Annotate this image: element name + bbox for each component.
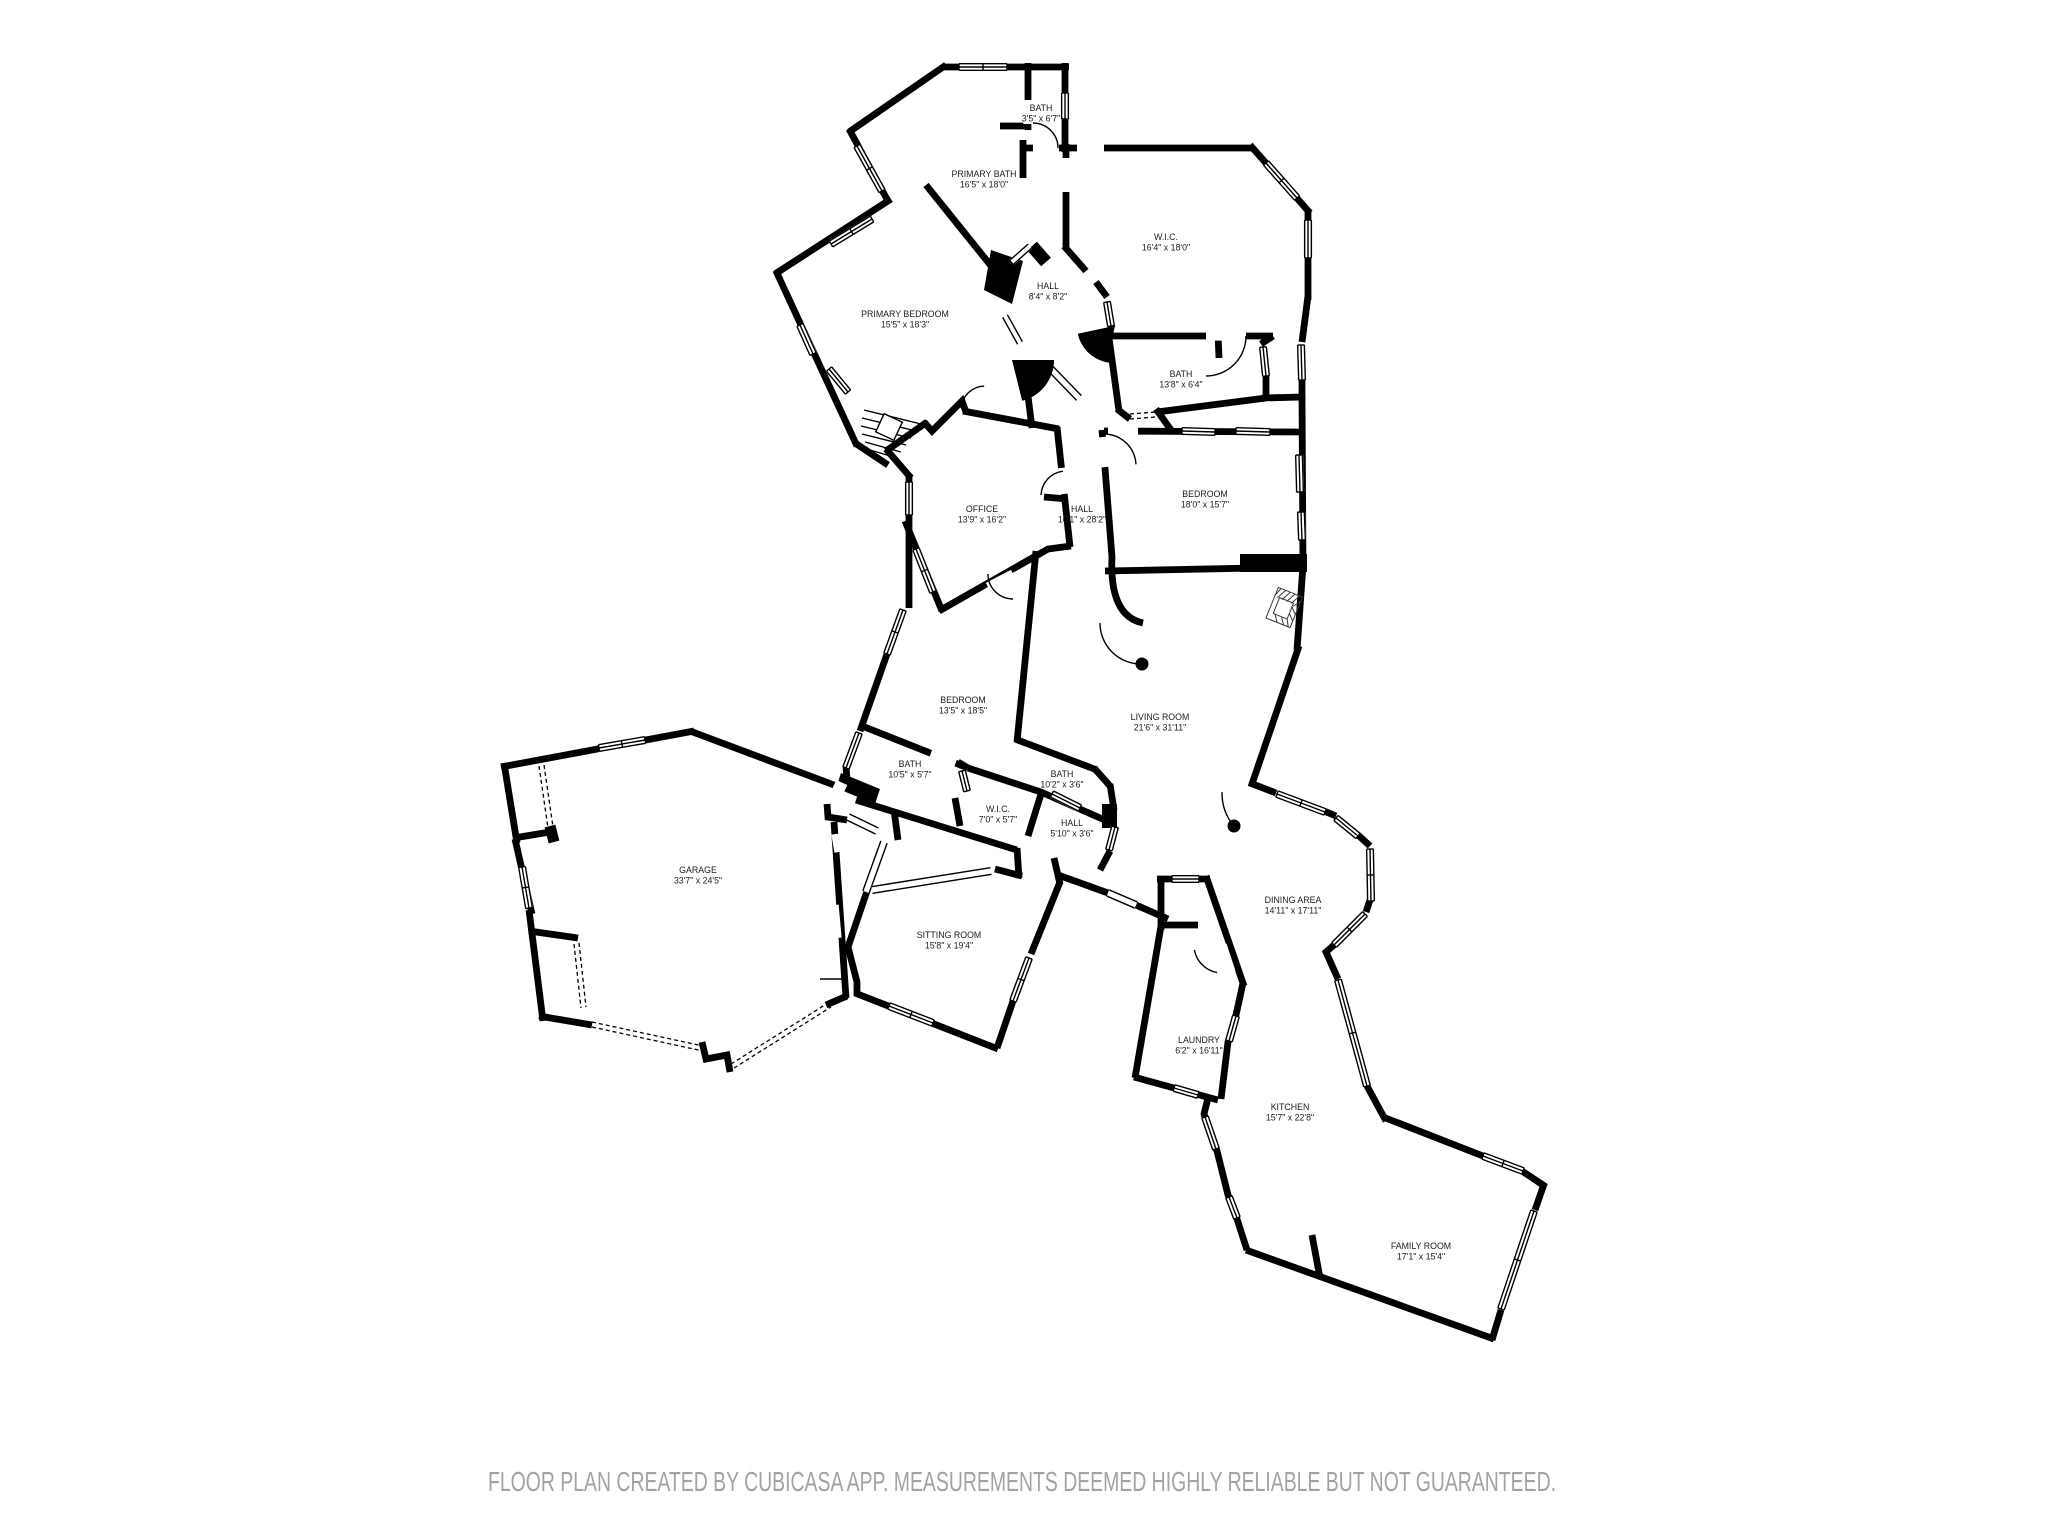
svg-text:PRIMARY BATH: PRIMARY BATH (951, 169, 1016, 179)
svg-text:16'5" x 18'0": 16'5" x 18'0" (960, 180, 1008, 190)
svg-text:13'8" x 6'4": 13'8" x 6'4" (1159, 380, 1202, 390)
svg-text:BATH: BATH (899, 759, 922, 769)
svg-text:FAMILY ROOM: FAMILY ROOM (1391, 1241, 1451, 1251)
svg-text:DINING AREA: DINING AREA (1265, 895, 1322, 905)
svg-text:BEDROOM: BEDROOM (1182, 489, 1227, 499)
svg-text:GARAGE: GARAGE (679, 865, 717, 875)
svg-text:LAUNDRY: LAUNDRY (1178, 1035, 1220, 1045)
svg-text:BATH: BATH (1030, 103, 1053, 113)
svg-text:W.I.C.: W.I.C. (986, 804, 1010, 814)
svg-text:8'4" x 8'2": 8'4" x 8'2" (1029, 292, 1067, 302)
svg-text:W.I.C.: W.I.C. (1154, 232, 1178, 242)
svg-text:3'5" x 6'7": 3'5" x 6'7" (1022, 114, 1060, 124)
svg-text:5'10" x 3'6": 5'10" x 3'6" (1050, 829, 1093, 839)
svg-text:FLOOR PLAN CREATED BY CUBICASA: FLOOR PLAN CREATED BY CUBICASA APP. MEAS… (488, 1466, 1556, 1497)
svg-text:10'2" x 3'6": 10'2" x 3'6" (1040, 780, 1083, 790)
svg-text:21'6" x 31'11": 21'6" x 31'11" (1134, 723, 1187, 733)
svg-text:17'1" x 15'4": 17'1" x 15'4" (1397, 1252, 1445, 1262)
svg-text:SITTING ROOM: SITTING ROOM (917, 930, 982, 940)
svg-text:15'8" x 19'4": 15'8" x 19'4" (925, 941, 973, 951)
svg-text:6'2" x 16'11": 6'2" x 16'11" (1175, 1046, 1223, 1056)
svg-text:PRIMARY BEDROOM: PRIMARY BEDROOM (861, 309, 949, 319)
svg-text:HALL: HALL (1071, 504, 1093, 514)
svg-text:14'11" x 17'11": 14'11" x 17'11" (1265, 906, 1322, 916)
svg-text:13'5" x 18'5": 13'5" x 18'5" (939, 706, 987, 716)
svg-text:HALL: HALL (1061, 818, 1083, 828)
svg-text:16'4" x 18'0": 16'4" x 18'0" (1142, 243, 1190, 253)
svg-text:BATH: BATH (1051, 769, 1074, 779)
svg-text:BEDROOM: BEDROOM (940, 695, 985, 705)
svg-text:15'5" x 18'3": 15'5" x 18'3" (881, 320, 929, 330)
svg-text:10'1" x 28'2": 10'1" x 28'2" (1058, 515, 1106, 525)
svg-text:13'9" x 16'2": 13'9" x 16'2" (958, 515, 1006, 525)
svg-text:BATH: BATH (1170, 369, 1193, 379)
svg-text:10'5" x 5'7": 10'5" x 5'7" (888, 770, 931, 780)
svg-text:15'7" x 22'8": 15'7" x 22'8" (1266, 1113, 1314, 1123)
svg-text:LIVING ROOM: LIVING ROOM (1131, 712, 1190, 722)
svg-text:7'0" x 5'7": 7'0" x 5'7" (979, 815, 1017, 825)
svg-text:HALL: HALL (1037, 281, 1059, 291)
svg-text:KITCHEN: KITCHEN (1271, 1102, 1310, 1112)
svg-text:18'0" x 15'7": 18'0" x 15'7" (1181, 500, 1229, 510)
svg-text:33'7" x 24'5": 33'7" x 24'5" (674, 876, 722, 886)
svg-text:OFFICE: OFFICE (966, 504, 998, 514)
